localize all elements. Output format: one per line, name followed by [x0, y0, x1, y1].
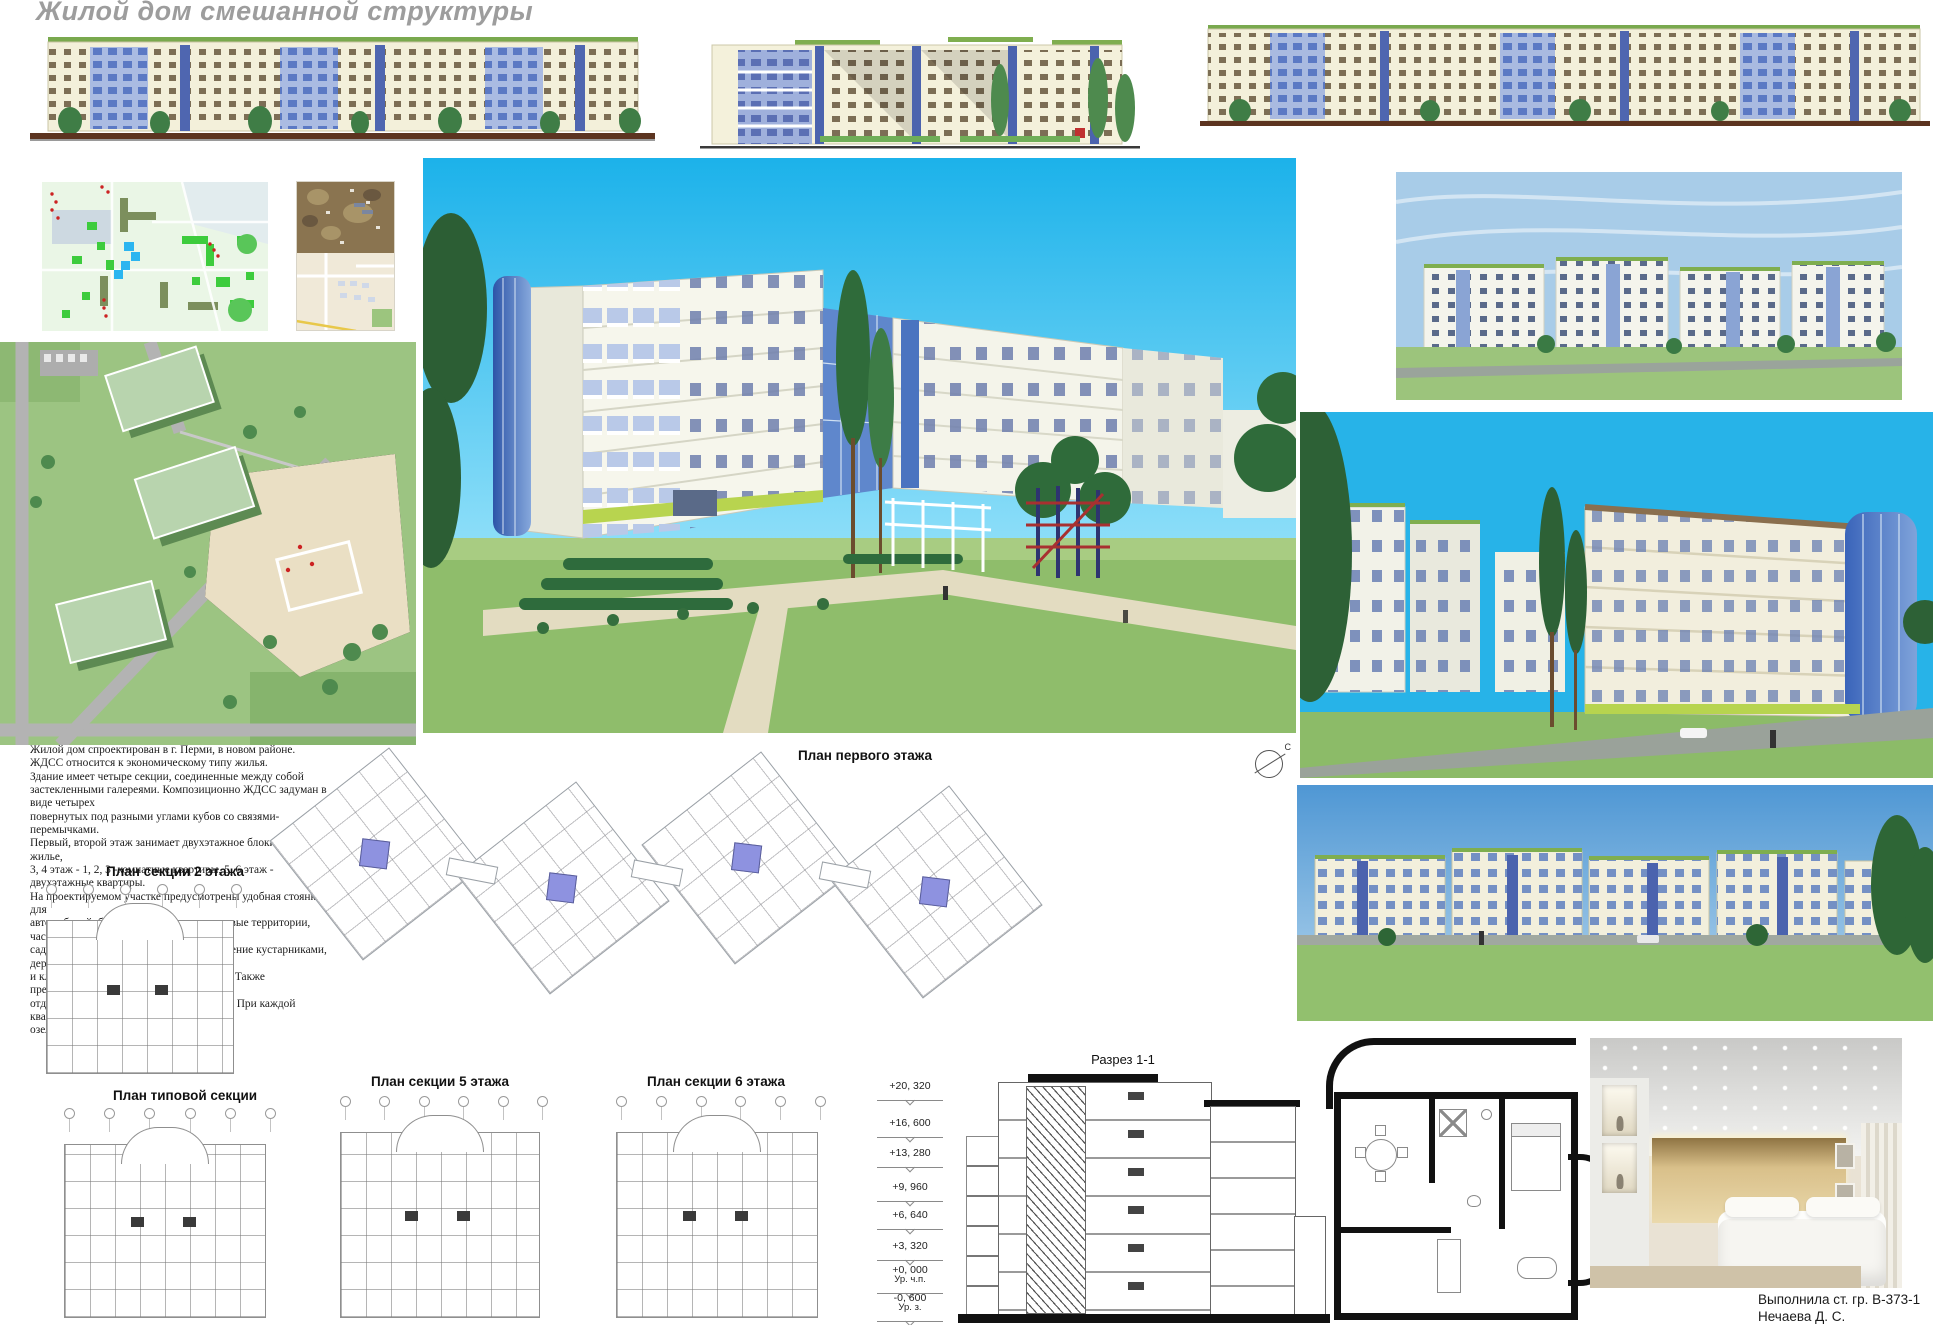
- axis-grid: [610, 1096, 832, 1107]
- first-floor-section-2: [456, 781, 669, 994]
- render-panorama: [1297, 785, 1933, 1021]
- section6-plan-label: План секции 6 этажа: [602, 1074, 830, 1089]
- city-map: [42, 182, 268, 331]
- first-floor-section-4: [829, 785, 1042, 998]
- section2-plan-drawing: [46, 920, 234, 1074]
- section-view-drawing: [958, 1066, 1336, 1318]
- render-top-right: [1396, 172, 1902, 400]
- elevation-drawing-1: [30, 33, 655, 155]
- axis-grid: [40, 884, 248, 895]
- elevation-mark: +3, 320: [860, 1240, 960, 1261]
- credit-line-1: Выполнила ст. гр. В-373-1: [1758, 1292, 1920, 1309]
- first-floor-section-3: [641, 751, 854, 964]
- wall-niche: [1602, 1143, 1636, 1193]
- section5-plan-label: План секции 5 этажа: [330, 1074, 550, 1089]
- elevation-mark: -0, 600 Ур. з.: [860, 1292, 960, 1322]
- render-mid-right: [1300, 412, 1933, 778]
- section5-plan-drawing: [340, 1132, 540, 1318]
- typical-plan-drawing: [64, 1144, 266, 1318]
- master-plan-render: [0, 342, 416, 745]
- wall-niche: [1602, 1085, 1636, 1135]
- elevation-mark: +13, 280: [860, 1147, 960, 1168]
- presentation-board: Жилой дом смешанной структуры: [0, 0, 1933, 1325]
- typical-plan-label: План типовой секции: [60, 1088, 310, 1103]
- aerial-photo-map: [296, 181, 395, 331]
- elevation-mark: +9, 960: [860, 1181, 960, 1202]
- interior-render: [1590, 1038, 1902, 1288]
- elevation-mark: +20, 320: [860, 1080, 960, 1101]
- axis-grid: [334, 1096, 554, 1107]
- first-floor-plan-label: План первого этажа: [680, 748, 1050, 763]
- author-credit: Выполнила ст. гр. В-373-1 Нечаева Д. С.: [1758, 1292, 1920, 1325]
- credit-line-2: Нечаева Д. С.: [1758, 1309, 1920, 1325]
- section2-plan-label: План секции 2 этажа: [60, 864, 290, 879]
- elevation-drawing-3: [1200, 15, 1930, 137]
- page-title: Жилой дом смешанной структуры: [36, 0, 533, 27]
- section-view-label: Разрез 1-1: [1048, 1052, 1198, 1067]
- axis-grid: [58, 1108, 282, 1119]
- north-arrow-icon: С: [1255, 750, 1283, 778]
- north-letter: С: [1285, 742, 1292, 752]
- apartment-plan-drawing: [1318, 1034, 1608, 1322]
- elevation-mark: +16, 600: [860, 1117, 960, 1138]
- section6-plan-drawing: [616, 1132, 818, 1318]
- main-perspective-render: [423, 158, 1296, 733]
- elevation-mark: +6, 640: [860, 1209, 960, 1230]
- elevation-drawing-2: [700, 28, 1140, 156]
- elevation-mark: +0, 000 Ур. ч.п.: [860, 1264, 960, 1294]
